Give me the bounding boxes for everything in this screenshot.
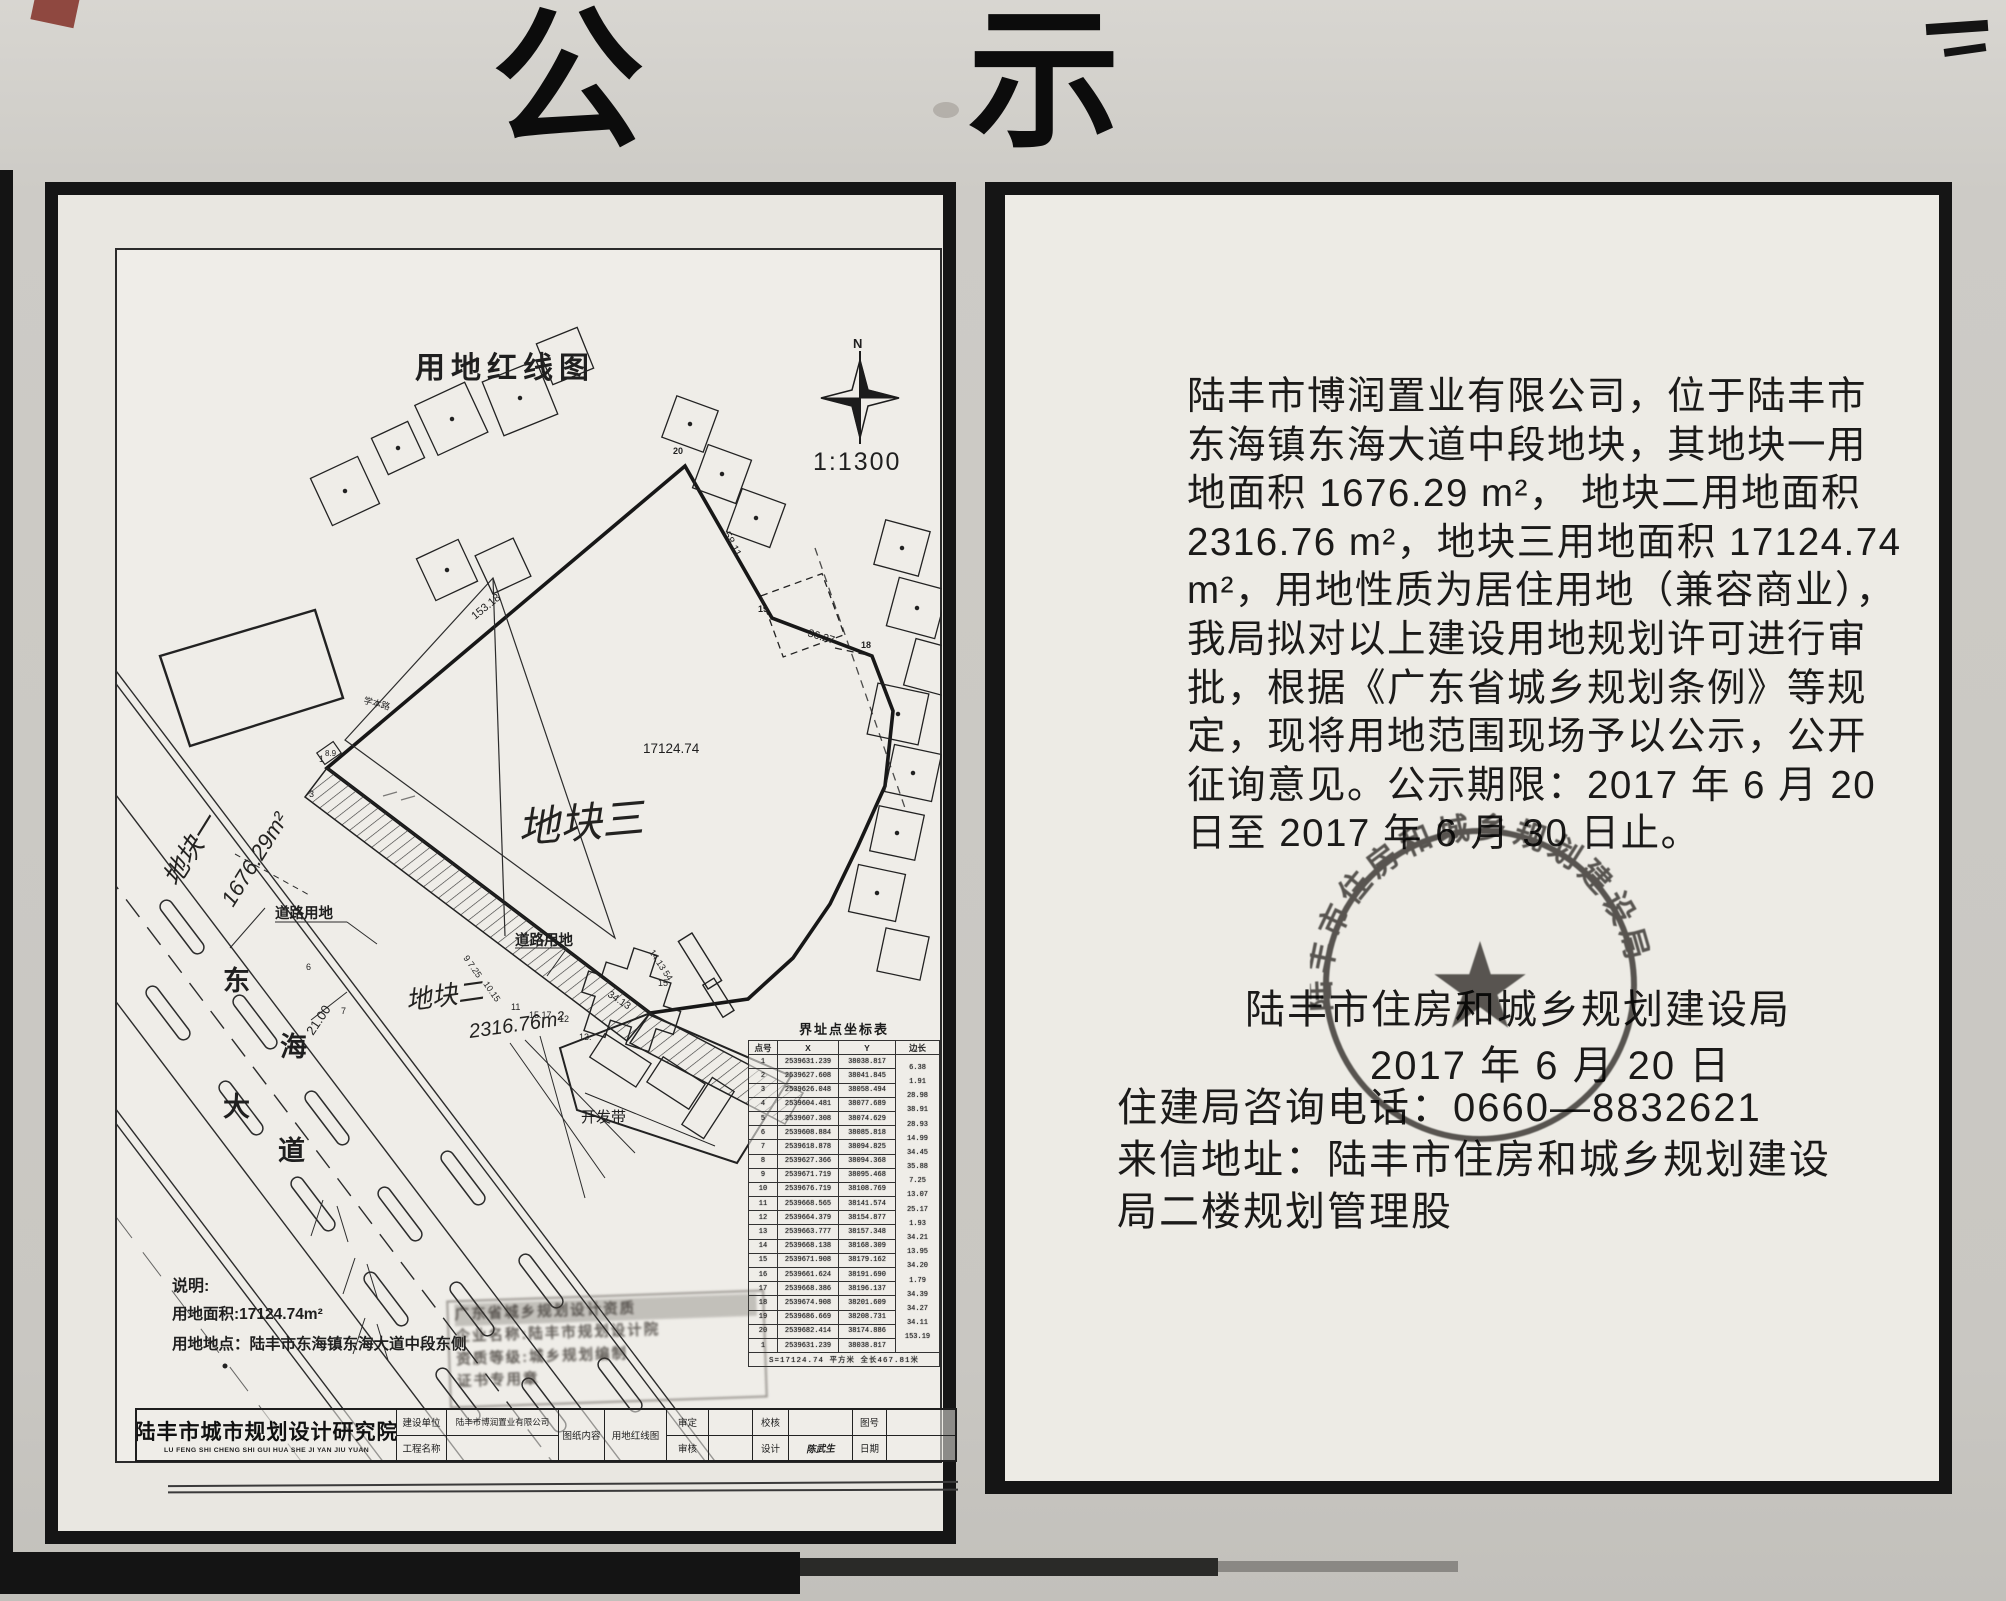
divider-line-1	[168, 1481, 958, 1487]
institute-name: 陆丰市城市规划设计研究院	[137, 1416, 396, 1446]
notice-line: 我局拟对以上建设用地规划许可进行审	[1187, 616, 1927, 665]
plot1-area-label: 1676.29m²	[216, 808, 293, 911]
drawing-title-block: 陆丰市城市规划设计研究院 LU FENG SHI CHENG SHI GUI H…	[135, 1408, 957, 1462]
col-x: X	[778, 1041, 839, 1055]
road-char-hai: 海	[280, 1032, 307, 1062]
qualification-stamp: 广东省城乡规划设计资质 企业名称:陆丰市规划设计院 资质等级:城乡规划编制 证书…	[446, 1289, 768, 1408]
edge-15-17: 15.17	[529, 1010, 552, 1020]
value-content: 用地红线图	[605, 1410, 666, 1460]
plot2-label: 地块二	[404, 975, 486, 1016]
col-point-no: 点号	[749, 1041, 778, 1055]
map-title: 用地红线图	[415, 352, 595, 385]
institute-pinyin: LU FENG SHI CHENG SHI GUI HUA SHE JI YAN…	[164, 1447, 369, 1454]
seal-star-icon	[1434, 941, 1525, 1028]
value-project	[447, 1436, 558, 1461]
vertex-13: 13.	[579, 1032, 592, 1042]
notice-panel-frame: 陆丰市博润置业有限公司，位于陆丰市东海镇东海大道中段地块，其地块一用地面积 16…	[985, 182, 1952, 1494]
value-review	[709, 1436, 752, 1461]
vertex-18: 18	[861, 640, 871, 650]
vertex-12: 12	[559, 1014, 569, 1024]
plot1-outline	[160, 610, 343, 746]
scan-smudge	[933, 102, 959, 118]
road-land-label-1: 道路用地	[275, 904, 333, 922]
coord-table-grid: 点号 X Y 边长 12539631.23938038.8176.38 2253…	[748, 1040, 940, 1367]
plot2-area-label: 2316.76m²	[467, 1008, 567, 1043]
col-edge-length: 边长	[896, 1041, 940, 1055]
label-check: 校核	[753, 1410, 788, 1436]
edge-153-18: 153.18	[469, 592, 503, 623]
road-char-da: 大	[223, 1092, 250, 1122]
notes-location: 用地地点：陆丰市东海镇东海大道中段东侧	[172, 1334, 467, 1353]
label-date: 日期	[853, 1436, 886, 1461]
coord-table-row: 12539631.23938038.8176.38	[749, 1055, 940, 1069]
vertex-20: 20	[673, 446, 683, 456]
label-design: 设计	[753, 1436, 788, 1461]
notice-line: 批，根据《广东省城乡规划条例》等规	[1187, 665, 1927, 714]
boundary-coordinate-table: 界址点坐标表 点号 X Y 边长 12539631.23938038.8176.…	[748, 1019, 940, 1367]
divider-line-2	[168, 1489, 958, 1493]
scan-edge-bottom-thick	[0, 1552, 800, 1594]
scan-edge-bottom-mid	[800, 1558, 1218, 1576]
value-design: 陈武生	[789, 1434, 853, 1461]
label-content: 图纸内容	[559, 1410, 604, 1460]
coord-table-title: 界址点坐标表	[748, 1019, 940, 1038]
notice-line: 2316.76 m²，地块三用地面积 17124.74	[1187, 519, 1927, 568]
value-builder: 陆丰市博润置业有限公司	[447, 1410, 558, 1436]
notice-paragraph: 陆丰市博润置业有限公司，位于陆丰市东海镇东海大道中段地块，其地块一用地面积 16…	[1187, 373, 1927, 859]
notice-line: 征询意见。公示期限：2017 年 6 月 20	[1187, 762, 1927, 811]
scan-mark-top-right-2	[1944, 43, 1987, 57]
plot1-label: 地块一	[157, 807, 225, 891]
scan-edge-left	[0, 170, 13, 1594]
vertex-6: 6	[306, 962, 311, 972]
edge-10-15: 10.15	[481, 979, 502, 1003]
road-char-dao: 道	[278, 1135, 305, 1166]
official-seal: 陆丰市住房和城乡规划建设局	[1310, 813, 1650, 1153]
map-scale: 1:1300	[813, 448, 901, 476]
edge-58-11: 58.11	[720, 530, 743, 559]
coord-table-header-row: 点号 X Y 边长	[749, 1041, 940, 1055]
page-title-char-left: 公	[492, 6, 644, 158]
vertex-7: 7	[341, 1006, 346, 1016]
compass-north-label: N	[853, 336, 862, 351]
map-panel-frame: 用地红线图 N 1:1300	[45, 182, 956, 1544]
value-approve	[709, 1410, 752, 1436]
notice-line: 地面积 1676.29 m²， 地块二用地面积	[1187, 470, 1927, 519]
vertex-15: 15	[658, 978, 668, 988]
neighbour-parcels	[310, 327, 942, 980]
vertex-3: 3	[309, 789, 314, 799]
contact-address-2: 局二楼规划管理股	[1117, 1179, 1453, 1237]
road-char-dong: 东	[223, 965, 250, 996]
plot3-label: 地块三	[516, 794, 649, 852]
col-y: Y	[839, 1041, 896, 1055]
value-drawno	[887, 1410, 955, 1436]
plot3-boundary	[327, 466, 893, 1013]
coord-table-body: 12539631.23938038.8176.38 22539627.60838…	[749, 1055, 940, 1353]
label-review: 审核	[667, 1436, 708, 1461]
notes-heading: 说明:	[172, 1276, 209, 1295]
label-builder: 建设单位	[397, 1410, 446, 1436]
road-land-label-2: 道路用地	[515, 931, 573, 949]
scanned-public-notice: { "title": { "left": "公", "right": "示" }…	[0, 0, 2006, 1601]
dev-belt-label: 开发带	[581, 1109, 626, 1126]
notice-line: 东海镇东海大道中段地块，其地块一用	[1187, 422, 1927, 471]
red-scan-mark	[30, 0, 79, 28]
notice-line: 定，现将用地范围现场予以公示，公开	[1187, 713, 1927, 762]
vertex-11: 11	[511, 1002, 520, 1012]
plot3-area-label: 17124.74	[643, 741, 700, 756]
vertex-19: 19	[758, 604, 768, 614]
notes-area: 用地面积:17124.74m²	[172, 1304, 323, 1323]
value-check	[789, 1410, 852, 1436]
road-width-label: 21.00	[303, 1002, 334, 1037]
side-road-label: 学本路	[362, 694, 391, 712]
edge-36-27: 36.27	[806, 627, 836, 647]
scan-mark-top-right-1	[1926, 20, 1989, 35]
edge-8-9: 8.9	[325, 749, 337, 758]
vertex-1: 1	[319, 754, 324, 764]
value-date	[887, 1436, 955, 1461]
institute-cell: 陆丰市城市规划设计研究院 LU FENG SHI CHENG SHI GUI H…	[137, 1410, 396, 1460]
notice-line: m²，用地性质为居住用地（兼容商业），	[1187, 567, 1927, 616]
scan-dot	[223, 1364, 228, 1369]
label-drawno: 图号	[853, 1410, 886, 1436]
scan-edge-bottom-faint	[1218, 1561, 1458, 1572]
label-project: 工程名称	[397, 1436, 446, 1461]
notice-line: 陆丰市博润置业有限公司，位于陆丰市	[1187, 373, 1927, 422]
label-approve: 审定	[667, 1410, 708, 1436]
compass-icon: N	[821, 336, 899, 444]
page-title-char-right: 示	[968, 6, 1120, 158]
